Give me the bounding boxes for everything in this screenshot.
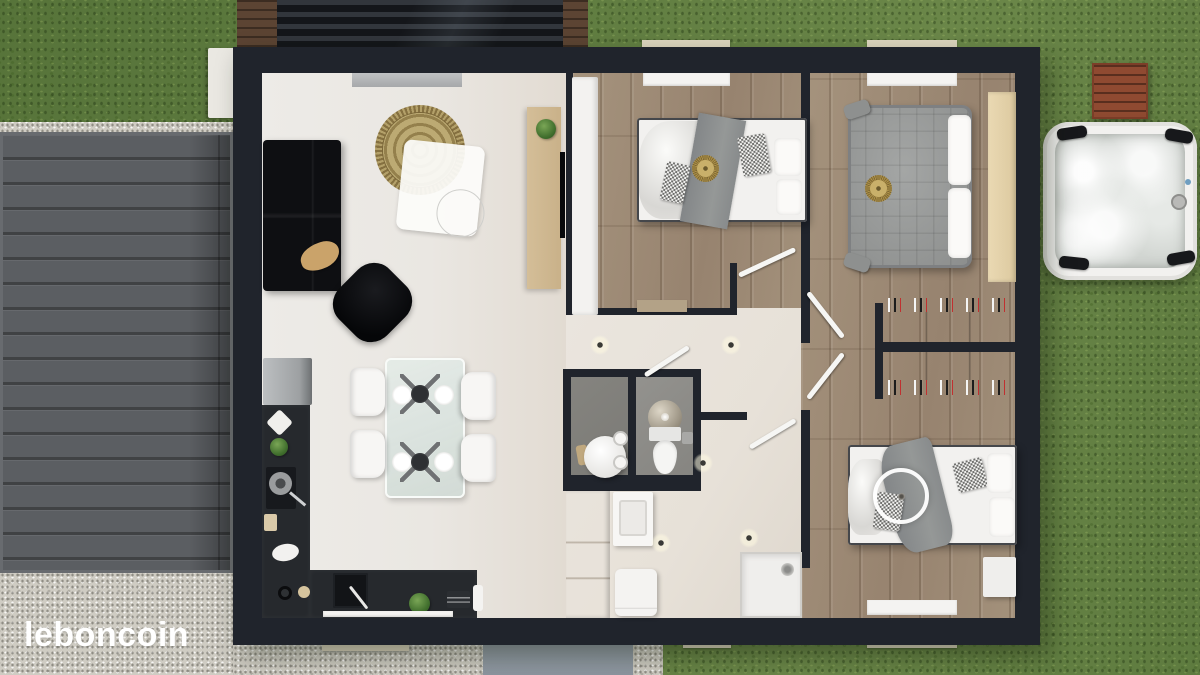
closet-unit bbox=[883, 352, 1013, 380]
plate bbox=[392, 452, 412, 472]
table-pedestal bbox=[411, 453, 429, 471]
washing-machine bbox=[615, 569, 657, 616]
ceiling-light bbox=[590, 335, 610, 355]
pergola-frame-left bbox=[237, 0, 277, 47]
nightstand bbox=[983, 557, 1016, 597]
wall bbox=[801, 410, 810, 568]
shower bbox=[740, 552, 802, 618]
pillow bbox=[989, 497, 1015, 537]
house bbox=[233, 47, 1040, 645]
gold-medallion bbox=[865, 175, 892, 202]
pallet-table bbox=[1092, 63, 1148, 119]
cushion bbox=[737, 133, 772, 177]
pillow bbox=[774, 138, 802, 176]
cushion bbox=[952, 457, 988, 493]
kitchen-window bbox=[323, 611, 453, 617]
entrance-path bbox=[483, 645, 633, 675]
small-basin bbox=[613, 455, 628, 470]
hot-tub-control bbox=[1171, 194, 1187, 210]
window-sill bbox=[322, 644, 409, 651]
small-basin bbox=[613, 431, 628, 446]
toilet-tank bbox=[649, 427, 681, 441]
coffee-table bbox=[396, 139, 486, 237]
pan bbox=[269, 472, 292, 495]
hot-tub-water bbox=[1055, 134, 1185, 268]
hanging-clothes bbox=[883, 380, 1013, 395]
pillow bbox=[776, 179, 802, 215]
ceiling-light bbox=[651, 533, 671, 553]
pillow bbox=[987, 453, 1013, 493]
toaster bbox=[447, 591, 470, 608]
plate bbox=[434, 385, 454, 405]
ceiling-light bbox=[739, 528, 759, 548]
tv bbox=[560, 152, 565, 238]
floorplan-render: leboncoin bbox=[0, 0, 1200, 675]
hot-tub-indicator bbox=[1185, 179, 1191, 185]
hot-tub-headrest bbox=[1058, 255, 1089, 270]
pergola-slats bbox=[277, 0, 563, 47]
ceiling-light bbox=[721, 335, 741, 355]
dining-chair bbox=[461, 372, 496, 420]
pot bbox=[278, 586, 292, 600]
wall bbox=[730, 263, 737, 315]
hot-tub bbox=[1043, 122, 1197, 280]
bathroom-vanity bbox=[613, 492, 653, 546]
bedroom-1-window bbox=[643, 73, 730, 86]
bedroom-2-bed bbox=[848, 105, 972, 268]
fridge bbox=[263, 358, 312, 405]
plate bbox=[392, 385, 412, 405]
terrace-deck bbox=[0, 132, 233, 573]
dining-chair bbox=[461, 434, 496, 482]
vanity-basin bbox=[619, 500, 647, 536]
plant bbox=[536, 119, 556, 139]
bedroom-2-window bbox=[867, 73, 957, 86]
ceiling-light bbox=[693, 453, 713, 473]
plant bbox=[270, 438, 288, 456]
plate bbox=[434, 452, 454, 472]
leboncoin-logo: leboncoin bbox=[24, 616, 189, 655]
pillow bbox=[948, 188, 971, 258]
wc-block bbox=[563, 369, 701, 491]
table-pedestal bbox=[411, 385, 429, 403]
entry-cabinet bbox=[566, 490, 610, 618]
sofa bbox=[263, 140, 341, 291]
bin bbox=[682, 432, 693, 444]
gold-medallion bbox=[692, 155, 719, 182]
wall bbox=[875, 342, 1015, 352]
bedroom-1-bed bbox=[637, 118, 807, 222]
dining-chair bbox=[350, 430, 385, 478]
bedroom-2-wardrobe bbox=[988, 92, 1016, 282]
towel bbox=[264, 514, 277, 531]
pillow bbox=[948, 115, 971, 185]
pergola-frame-right bbox=[563, 0, 588, 47]
entry-door bbox=[473, 585, 483, 611]
ring-light bbox=[873, 468, 929, 524]
closet-unit bbox=[883, 312, 1013, 342]
radiator bbox=[352, 73, 462, 87]
bowl bbox=[298, 586, 310, 598]
bedroom-1-wardrobe bbox=[572, 77, 598, 315]
dining-chair bbox=[350, 368, 385, 416]
bedroom-3-bed bbox=[848, 445, 1017, 545]
shower-drain bbox=[781, 563, 794, 576]
bedroom-3-window bbox=[867, 600, 957, 615]
hanging-clothes bbox=[883, 298, 1013, 312]
bedroom-1-doormat bbox=[637, 300, 687, 312]
gravel-path-edge bbox=[633, 645, 663, 675]
